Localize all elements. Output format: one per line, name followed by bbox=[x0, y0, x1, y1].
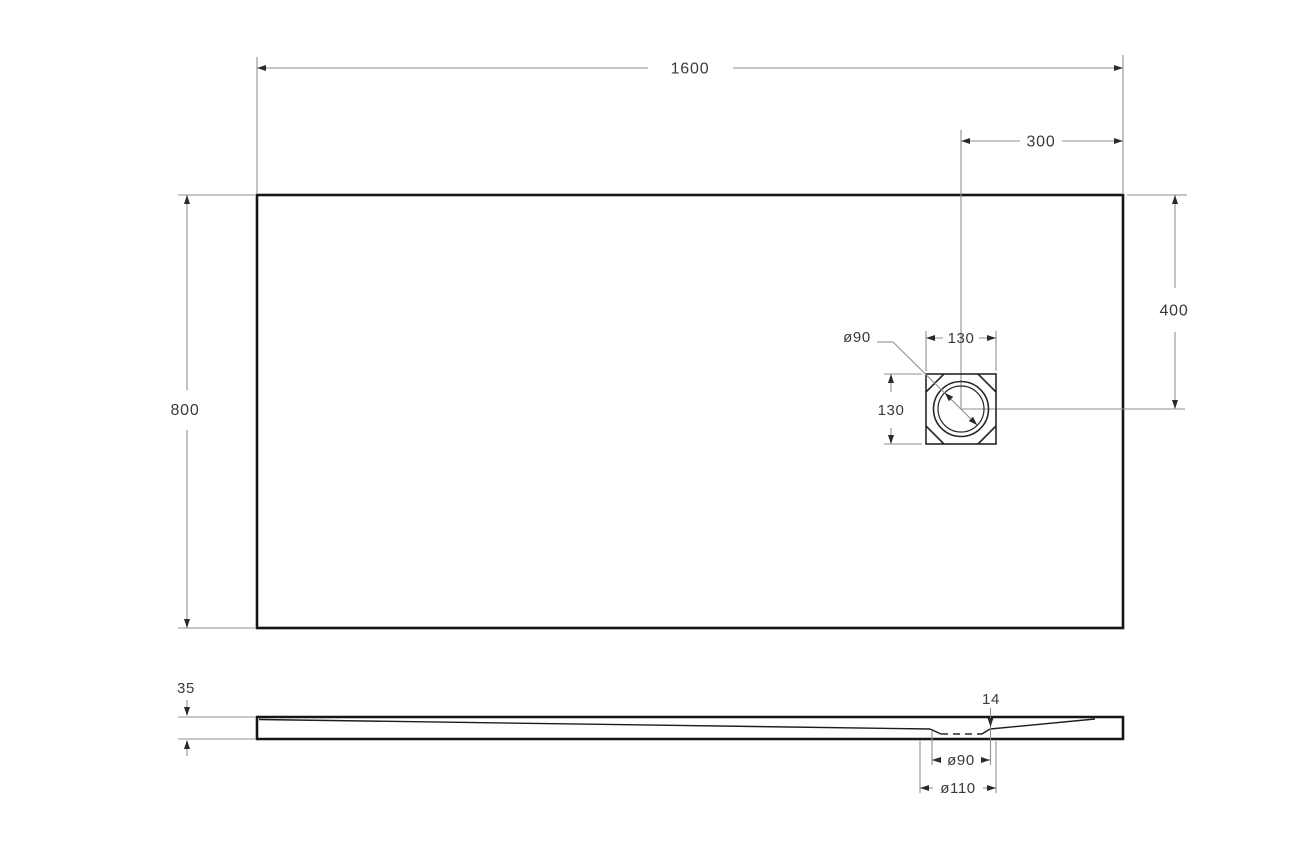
dim-label-d90-side: ø90 bbox=[947, 752, 975, 769]
dim-label-35: 35 bbox=[177, 680, 195, 697]
drawing-canvas: 1600 800 300 400 bbox=[0, 0, 1300, 867]
arrow-right-icon bbox=[1114, 65, 1123, 71]
dim-label-130-v: 130 bbox=[878, 402, 905, 419]
arrow-down-icon bbox=[184, 619, 190, 628]
dimension-drain-flange: ø110 bbox=[920, 741, 996, 797]
dim-label-14: 14 bbox=[982, 691, 1000, 708]
arrow-up-icon bbox=[184, 740, 190, 749]
dim-label-800: 800 bbox=[170, 402, 199, 419]
dim-label-400: 400 bbox=[1159, 303, 1188, 320]
arrow-up-icon bbox=[1172, 195, 1178, 204]
arrow-right-icon bbox=[981, 757, 990, 763]
dimension-drain-offset-right: 300 bbox=[961, 134, 1123, 151]
dim-label-d110: ø110 bbox=[940, 780, 975, 797]
top-view: 1600 800 300 400 bbox=[170, 55, 1188, 628]
tray-top-outline bbox=[257, 195, 1123, 628]
arrow-up-icon bbox=[184, 195, 190, 204]
arrow-left-icon bbox=[961, 138, 970, 144]
arrow-down-icon bbox=[184, 707, 190, 716]
shower-tray-technical-drawing: 1600 800 300 400 bbox=[0, 0, 1300, 867]
side-view: 35 14 ø90 ø110 bbox=[177, 680, 1123, 797]
dimension-overall-width: 1600 bbox=[257, 55, 1123, 193]
dimension-overall-depth: 800 bbox=[170, 195, 255, 628]
dim-label-d90-top: ø90 bbox=[843, 329, 871, 346]
dim-label-130-h: 130 bbox=[948, 330, 975, 347]
tray-side-outline bbox=[257, 717, 1123, 739]
dimension-tray-height: 35 bbox=[177, 680, 255, 756]
dim-label-1600: 1600 bbox=[671, 61, 710, 78]
arrow-right-icon bbox=[1114, 138, 1123, 144]
arrow-left-icon bbox=[932, 757, 941, 763]
arrow-left-icon bbox=[920, 785, 929, 791]
arrow-right-icon bbox=[987, 785, 996, 791]
arrow-left-icon bbox=[257, 65, 266, 71]
dimension-drain-offset-top: 400 bbox=[1127, 195, 1189, 409]
arrow-down-icon bbox=[1172, 400, 1178, 409]
dim-label-300: 300 bbox=[1026, 134, 1055, 151]
